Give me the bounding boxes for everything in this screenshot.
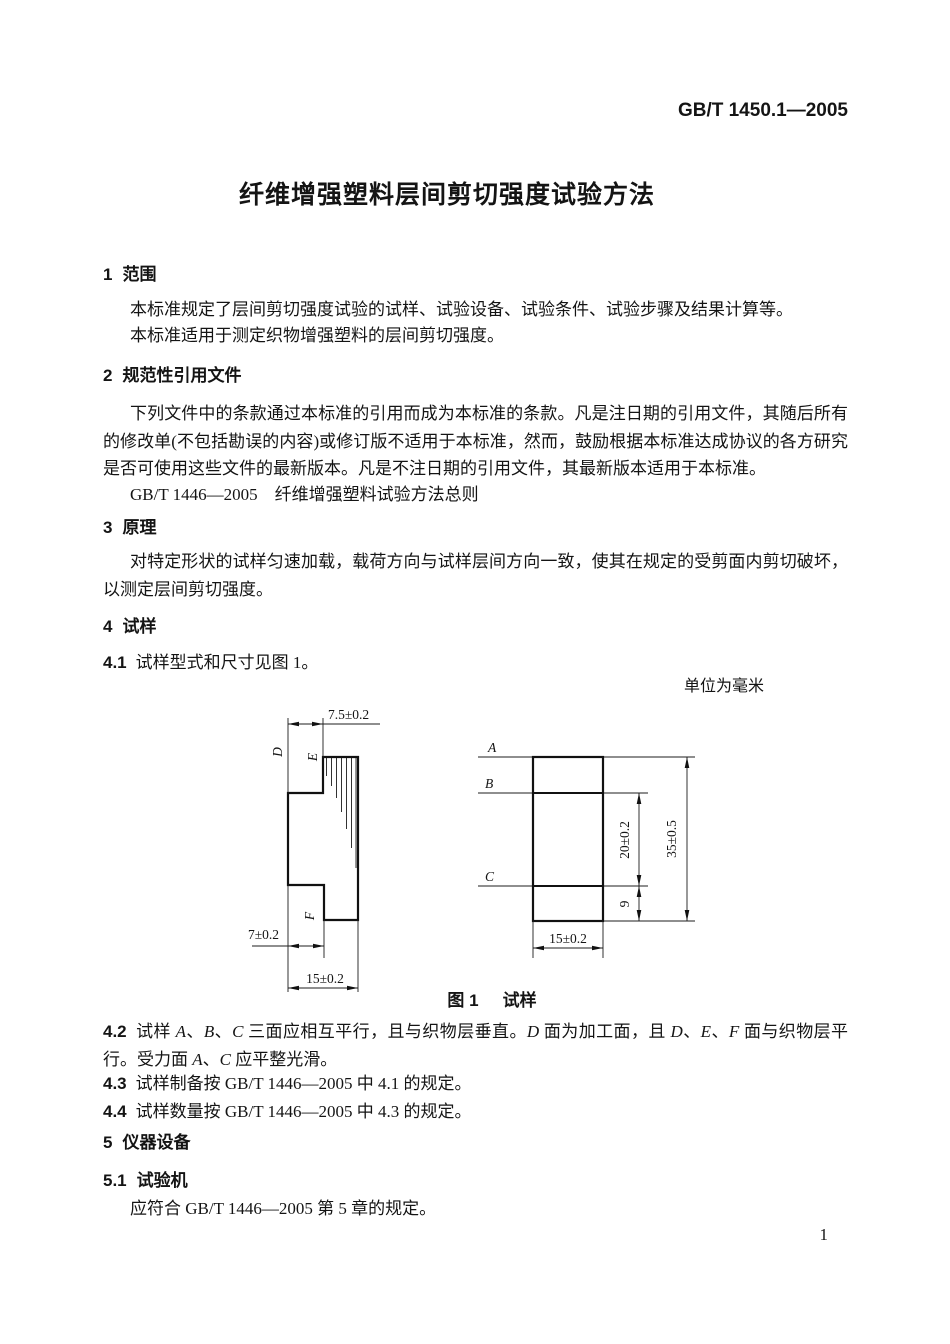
unit-note: 单位为毫米 xyxy=(684,676,764,698)
section-heading-1: 1范围 xyxy=(103,264,848,286)
section-title: 试样 xyxy=(122,617,156,636)
figure-caption-label: 图 1 xyxy=(447,991,478,1010)
section-heading-3: 3原理 xyxy=(103,517,848,539)
dimension-lines xyxy=(252,724,380,988)
clause-heading-5-1: 5.1试验机 xyxy=(103,1170,848,1192)
dim-width-15: 15±0.2 xyxy=(306,971,344,986)
laminate-layer-lines xyxy=(327,758,357,868)
specimen-front-outline xyxy=(533,757,603,921)
section-number: 3 xyxy=(103,517,112,539)
clause-text: 试样型式和尺寸见图 1。 xyxy=(136,653,319,672)
figure-1-specimen-drawing: 7.5±0.2 7±0.2 15±0.2 D E F xyxy=(230,700,770,996)
section-title: 范围 xyxy=(122,265,156,284)
dim-width-15: 15±0.2 xyxy=(549,931,587,946)
side-view: 7.5±0.2 7±0.2 15±0.2 D E F xyxy=(248,707,380,992)
paragraph: 对特定形状的试样匀速加载，载荷方向与试样层间方向一致，使其在规定的受剪面内剪切破… xyxy=(103,548,848,603)
section-heading-2: 2规范性引用文件 xyxy=(103,365,848,387)
section-title: 原理 xyxy=(122,518,156,537)
clause-title: 试验机 xyxy=(137,1171,188,1190)
section-number: 1 xyxy=(103,264,112,286)
section-heading-5: 5仪器设备 xyxy=(103,1132,848,1154)
section-lines xyxy=(478,757,695,921)
section-title: 仪器设备 xyxy=(122,1133,190,1152)
face-label-A: A xyxy=(487,740,497,755)
section-heading-4: 4试样 xyxy=(103,616,848,638)
section-number: 5 xyxy=(103,1132,112,1154)
clause-4-1: 4.1试样型式和尺寸见图 1。 xyxy=(103,649,848,677)
front-view: A B C 20±0.2 9 35±0.5 15±0.2 xyxy=(478,740,695,958)
document-title: 纤维增强塑料层间剪切强度试验方法 xyxy=(0,178,922,212)
dim-mid-20: 20±0.2 xyxy=(617,821,632,859)
standard-code: GB/T 1450.1—2005 xyxy=(103,99,848,123)
face-label-F: F xyxy=(302,911,317,921)
paragraph: 本标准规定了层间剪切强度试验的试样、试验设备、试验条件、试验步骤及结果计算等。 xyxy=(103,296,848,324)
clause-number: 4.3 xyxy=(103,1074,127,1093)
clause-text: 试样 A、B、C 三面应相互平行，且与织物层垂直。D 面为加工面，且 D、E、F… xyxy=(103,1022,848,1069)
figure-caption-text: 试样 xyxy=(503,991,537,1010)
figure-caption: 图 1试样 xyxy=(42,990,942,1012)
section-number: 2 xyxy=(103,365,112,387)
specimen-side-outline xyxy=(288,757,358,920)
face-label-B: B xyxy=(485,776,493,791)
normative-reference: GB/T 1446—2005 纤维增强塑料试验方法总则 xyxy=(103,481,848,509)
face-label-E: E xyxy=(305,752,320,762)
dim-bottom-left-7: 7±0.2 xyxy=(248,927,279,942)
standard-document-page: GB/T 1450.1—2005 纤维增强塑料层间剪切强度试验方法 1范围 本标… xyxy=(0,0,950,1344)
clause-4-2: 4.2试样 A、B、C 三面应相互平行，且与织物层垂直。D 面为加工面，且 D、… xyxy=(103,1018,848,1073)
clause-number: 4.2 xyxy=(103,1022,127,1041)
paragraph: 本标准适用于测定织物增强塑料的层间剪切强度。 xyxy=(103,322,848,350)
dim-lower-9: 9 xyxy=(617,900,632,907)
clause-4-4: 4.4试样数量按 GB/T 1446—2005 中 4.3 的规定。 xyxy=(103,1098,848,1126)
paragraph: 应符合 GB/T 1446—2005 第 5 章的规定。 xyxy=(103,1195,848,1223)
shear-plane-lines xyxy=(533,793,603,886)
section-title: 规范性引用文件 xyxy=(122,366,241,385)
dim-total-35: 35±0.5 xyxy=(664,820,679,858)
clause-number: 5.1 xyxy=(103,1170,127,1192)
face-label-D: D xyxy=(270,747,285,758)
clause-text: 试样数量按 GB/T 1446—2005 中 4.3 的规定。 xyxy=(136,1102,472,1121)
clause-number: 4.1 xyxy=(103,653,127,672)
face-label-C: C xyxy=(485,869,495,884)
dim-top-7-5: 7.5±0.2 xyxy=(328,707,369,722)
clause-4-3: 4.3试样制备按 GB/T 1446—2005 中 4.1 的规定。 xyxy=(103,1070,848,1098)
clause-number: 4.4 xyxy=(103,1102,127,1121)
paragraph: 下列文件中的条款通过本标准的引用而成为本标准的条款。凡是注日期的引用文件，其随后… xyxy=(103,400,848,483)
section-number: 4 xyxy=(103,616,112,638)
clause-text: 试样制备按 GB/T 1446—2005 中 4.1 的规定。 xyxy=(136,1074,472,1093)
page-number: 1 xyxy=(103,1224,828,1246)
